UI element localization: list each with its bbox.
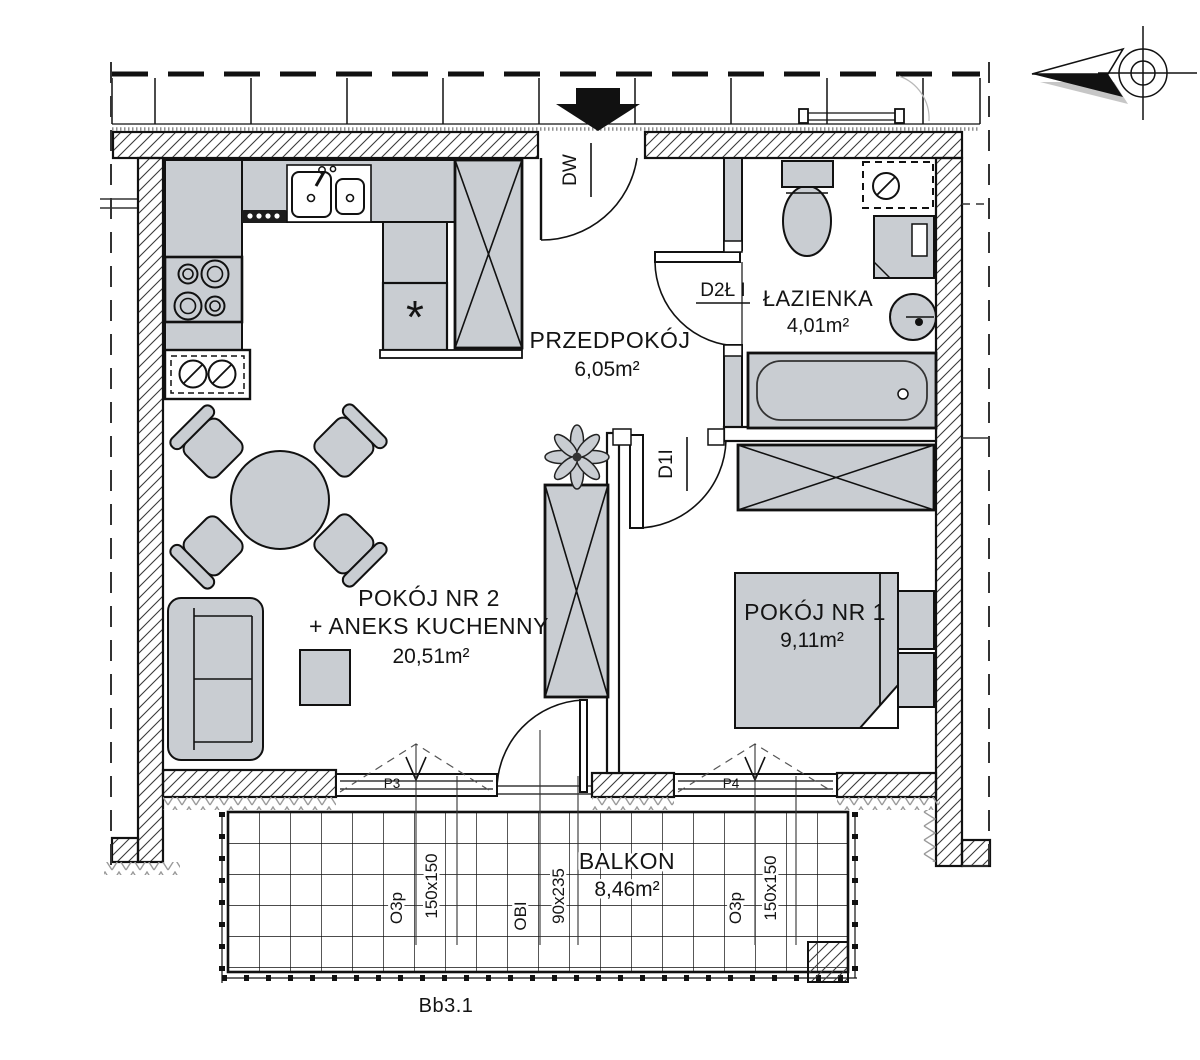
cabinet-base-line <box>380 350 522 358</box>
balcony-pillar <box>808 942 848 982</box>
svg-text:DW: DW <box>560 154 581 186</box>
door-type-label-balcony: OBI <box>511 901 530 930</box>
room2-wardrobe <box>545 485 608 697</box>
window-type-label-p4: O3p <box>726 892 745 924</box>
area-label-room2: 20,51m² <box>392 645 469 668</box>
door-swing-arc <box>636 440 726 528</box>
kitchen-annex: * <box>165 160 522 399</box>
bathtub <box>748 353 936 428</box>
area-label-hall: 6,05m² <box>574 358 639 381</box>
floor-plan-page: * <box>0 0 1200 1060</box>
strip-dividers <box>112 78 980 124</box>
partition-bath-bottom <box>724 345 742 433</box>
door-swing-arc <box>541 158 637 240</box>
kitchen-counter-left-lower <box>165 322 242 350</box>
wall-right <box>936 158 962 866</box>
room1-wardrobe <box>738 445 934 510</box>
area-label-room1: 9,11m² <box>780 629 844 652</box>
wall-bottom-left <box>163 770 336 797</box>
plan-code-label: Bb3.1 <box>419 995 474 1017</box>
wall-right-stub <box>962 840 990 866</box>
door-entrance-dw <box>541 158 637 240</box>
nightstand <box>898 653 934 707</box>
strip-window <box>799 76 929 123</box>
hall-wardrobe <box>455 160 522 348</box>
door-leaf <box>580 700 587 792</box>
nightstand <box>898 591 934 649</box>
dining-table <box>231 451 329 549</box>
hob-control-strip <box>242 210 287 223</box>
window-label-p3: P3 <box>384 776 401 791</box>
door-leaf <box>630 435 643 528</box>
wall-top-right <box>645 132 962 158</box>
room-label-room2-annex: + ANEKS KUCHENNY <box>309 613 549 639</box>
room-label-room1: POKÓJ NR 1 <box>744 599 886 625</box>
kitchen-counter-left <box>165 160 242 257</box>
washer-appliance <box>874 216 934 278</box>
stove-cooktop <box>165 257 242 322</box>
area-label-bathroom: 4,01m² <box>787 315 850 337</box>
floor-plan-drawing: * <box>0 0 1200 1060</box>
partition-bath-top <box>724 158 742 250</box>
room-label-bathroom: ŁAZIENKA <box>763 286 873 311</box>
door-label-bathroom: D2Ł I <box>696 280 750 303</box>
wall-left <box>138 158 163 862</box>
washing-machine-dashed <box>863 162 933 208</box>
north-arrow-icon <box>1032 26 1197 120</box>
window-size-label-p4: 150x150 <box>761 855 780 920</box>
toilet <box>782 161 833 256</box>
door-label-entrance: DW <box>560 143 591 197</box>
top-corridor-strip <box>112 74 980 129</box>
room-label-balcony: BALKON <box>579 848 675 874</box>
sofa <box>168 598 263 760</box>
room-label-room2: POKÓJ NR 2 <box>358 585 500 611</box>
dining-chair <box>168 403 249 484</box>
room-label-hall: PRZEDPOKÓJ <box>530 327 691 353</box>
wall-top-left <box>113 132 538 158</box>
window-type-label-p3: O3p <box>387 892 406 924</box>
door-leaf <box>655 252 740 262</box>
door-label-room1: D1I <box>656 437 687 491</box>
wall-bottom-right <box>837 773 936 797</box>
wall-bottom-mid <box>592 773 674 797</box>
wall-left-stub <box>112 838 138 862</box>
door-size-label-balcony: 90x235 <box>549 868 568 924</box>
kitchen-sink <box>287 165 371 222</box>
coffee-table <box>300 650 350 705</box>
freezer-symbol: * <box>406 291 424 343</box>
window-label-p4: P4 <box>723 776 740 791</box>
potted-plant <box>545 425 609 489</box>
washbasin <box>890 294 936 340</box>
svg-text:D2Ł I: D2Ł I <box>700 280 745 301</box>
area-label-balcony: 8,46m² <box>594 878 659 901</box>
svg-text:D1I: D1I <box>656 449 677 479</box>
room1-furniture <box>735 445 934 728</box>
under-counter-appliance <box>165 350 250 399</box>
window-size-label-p3: 150x150 <box>422 853 441 918</box>
room2-furniture <box>168 402 609 760</box>
